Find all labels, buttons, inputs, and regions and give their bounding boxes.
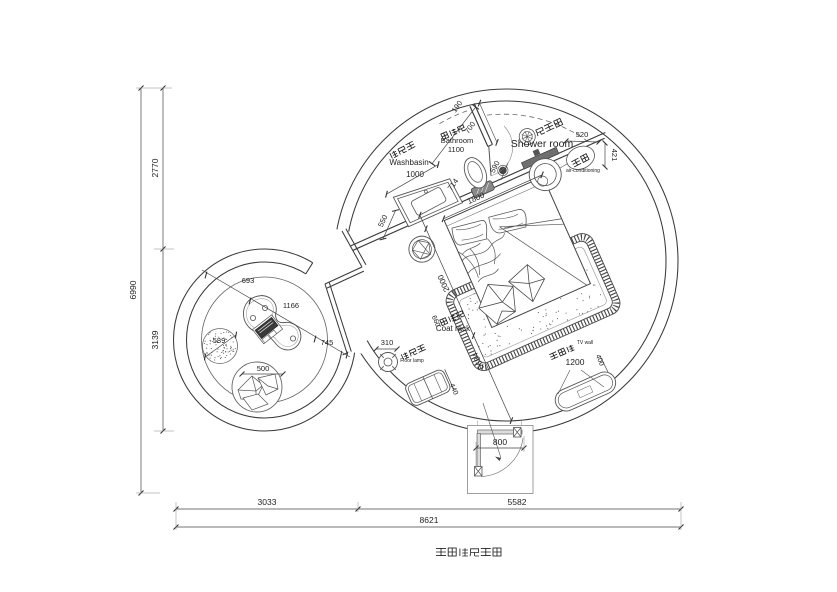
svg-text:3139: 3139	[150, 330, 160, 349]
svg-text:Washbasin: Washbasin	[389, 158, 428, 167]
svg-text:3033: 3033	[258, 497, 277, 507]
svg-text:520: 520	[576, 130, 589, 139]
svg-text:TV wall: TV wall	[577, 340, 593, 346]
svg-text:Floor lamp: Floor lamp	[400, 358, 424, 364]
svg-text:Coat rack: Coat rack	[436, 324, 471, 333]
svg-text:500: 500	[257, 364, 270, 373]
svg-text:589: 589	[213, 336, 226, 345]
svg-text:800: 800	[493, 437, 507, 447]
svg-text:2770: 2770	[150, 158, 160, 177]
svg-text:6990: 6990	[128, 280, 138, 299]
svg-text:421: 421	[610, 149, 619, 162]
svg-text:1200: 1200	[566, 357, 585, 367]
svg-text:8621: 8621	[420, 515, 439, 525]
svg-text:5582: 5582	[508, 497, 527, 507]
svg-text:310: 310	[381, 338, 394, 347]
svg-text:air-conditioning: air-conditioning	[566, 168, 600, 174]
svg-text:693: 693	[242, 276, 255, 285]
svg-text:1166: 1166	[283, 301, 299, 310]
svg-text:Shower room: Shower room	[511, 138, 574, 150]
svg-text:745: 745	[321, 338, 334, 347]
svg-text:Bathroom: Bathroom	[441, 136, 474, 145]
svg-text:1100: 1100	[448, 145, 464, 154]
